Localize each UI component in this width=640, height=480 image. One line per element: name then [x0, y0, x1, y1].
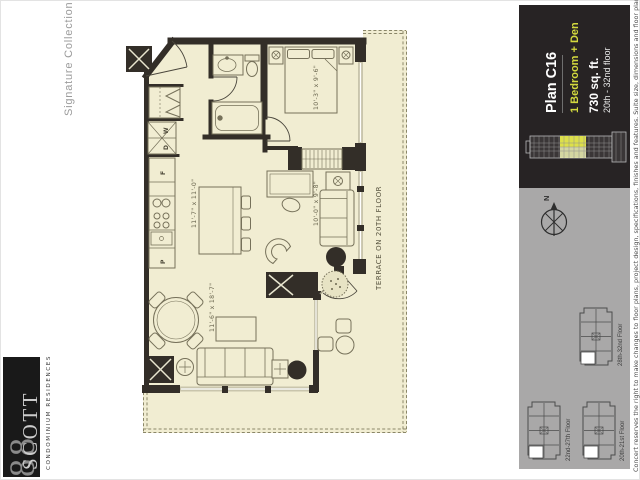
- cooktop-burner: [163, 213, 169, 219]
- terrace-chair: [336, 319, 351, 333]
- floor-lamp: [177, 359, 194, 376]
- bathtub: [212, 102, 262, 134]
- dryer-label: D: [163, 145, 170, 150]
- stool: [242, 217, 251, 230]
- round-side-table: [326, 247, 346, 267]
- kitchen-dims: 11'-7" x 11'-0": [191, 179, 198, 228]
- sheet-canvas: 10'-3" x 9'-6" 11'-7" x 11'-0" 11'-6" x …: [0, 0, 640, 480]
- plan-type: 1 Bedroom + Den: [569, 22, 581, 113]
- building-elevation: [526, 132, 626, 162]
- black-accent-table: [288, 361, 307, 380]
- loveseat: [320, 190, 354, 246]
- keyplan-label: 28th-32nd Floor: [618, 324, 624, 366]
- plan-area: 730 sq. ft.: [587, 58, 601, 113]
- pillow: [288, 50, 310, 59]
- cooktop-burner: [163, 222, 169, 228]
- terrace-planter: [322, 271, 348, 297]
- living-dims: 11'-6" x 18'-7": [209, 283, 216, 332]
- plan-info-panel: Plan C16 1 Bedroom + Den 730 sq. ft. 20t…: [519, 5, 630, 188]
- den-dims: 10'-0" x 9'-8": [313, 181, 320, 226]
- cooktop-burner: [154, 213, 160, 219]
- plan-name: Plan C16: [544, 52, 560, 113]
- nightstand: [339, 47, 353, 64]
- left-branding: Signature Collection 88 SCOTT CONDOMINIU…: [2, 2, 75, 477]
- locator-panel: N 28th-32nd Floor 22nd-27th Floor 20th-2…: [519, 188, 630, 469]
- collection-label: Signature Collection: [63, 2, 75, 116]
- bath-vanity: [213, 55, 243, 75]
- fridge-label: F: [160, 171, 167, 175]
- pillow: [312, 50, 334, 59]
- sink-bowl: [162, 199, 170, 207]
- stool: [242, 196, 251, 209]
- washer-dryer: [148, 122, 176, 154]
- north-label: N: [542, 196, 551, 201]
- dining-table: [148, 291, 204, 350]
- den-cabinet: [326, 172, 350, 190]
- washer-label: W: [163, 127, 170, 134]
- logo-tagline: CONDOMINIUM RESIDENCES: [46, 355, 52, 470]
- keyplan-label: 22nd-27th Floor: [566, 419, 572, 461]
- terrace-table: [336, 336, 354, 354]
- toilet: [245, 55, 259, 77]
- cooktop-burner: [154, 222, 160, 228]
- terrace-chair: [318, 337, 333, 351]
- lamp-side-table: [272, 360, 288, 378]
- sink-bowl: [153, 199, 161, 207]
- kitchen-island: [199, 187, 251, 254]
- nightstand: [269, 47, 283, 64]
- keyplan-label: 20th-21st Floor: [620, 421, 626, 461]
- disclaimer-text: Concert reserves the right to make chang…: [632, 0, 640, 472]
- logo-name: SCOTT: [18, 391, 42, 470]
- building-podium: [612, 132, 626, 162]
- sofa: [197, 348, 273, 385]
- bedroom-closet: [302, 149, 342, 169]
- terrace-label: TERRACE ON 20TH FLOOR: [375, 186, 383, 291]
- coffee-table: [216, 317, 256, 341]
- bed: [285, 47, 337, 113]
- pantry-label: P: [160, 259, 167, 264]
- floorplan: 10'-3" x 9'-6" 11'-7" x 11'-0" 11'-6" x …: [126, 30, 407, 433]
- foyer-closet: [149, 87, 180, 118]
- bedroom-dims: 10'-3" x 9'-6": [313, 65, 320, 110]
- floorplan-sheet: 10'-3" x 9'-6" 11'-7" x 11'-0" 11'-6" x …: [0, 0, 640, 480]
- stool: [242, 238, 251, 251]
- plan-floors: 20th - 32nd floor: [602, 47, 612, 113]
